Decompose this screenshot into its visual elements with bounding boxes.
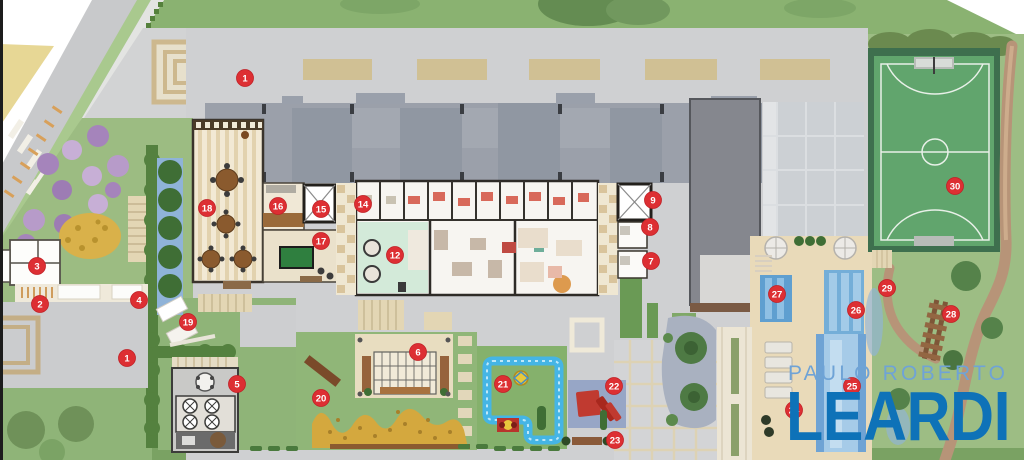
svg-text:20: 20	[316, 394, 327, 405]
svg-text:2: 2	[37, 300, 42, 311]
svg-text:12: 12	[390, 251, 401, 262]
svg-text:21: 21	[498, 380, 509, 391]
svg-text:19: 19	[183, 318, 194, 329]
svg-text:29: 29	[882, 284, 893, 295]
svg-text:30: 30	[950, 182, 961, 193]
svg-text:5: 5	[234, 380, 240, 391]
svg-text:3: 3	[34, 262, 39, 273]
svg-text:15: 15	[316, 205, 327, 216]
svg-text:16: 16	[273, 202, 284, 213]
svg-text:8: 8	[647, 223, 652, 234]
svg-text:4: 4	[136, 296, 142, 307]
svg-text:18: 18	[202, 204, 213, 215]
svg-text:14: 14	[358, 200, 369, 211]
svg-text:26: 26	[851, 306, 862, 317]
svg-text:17: 17	[316, 237, 327, 248]
svg-text:27: 27	[772, 290, 783, 301]
svg-text:22: 22	[609, 382, 620, 393]
svg-text:9: 9	[650, 196, 655, 207]
svg-text:23: 23	[610, 436, 621, 447]
svg-text:1: 1	[242, 74, 248, 85]
svg-text:7: 7	[648, 257, 653, 268]
svg-text:1: 1	[124, 354, 130, 365]
svg-text:6: 6	[415, 348, 420, 359]
svg-text:28: 28	[946, 310, 957, 321]
